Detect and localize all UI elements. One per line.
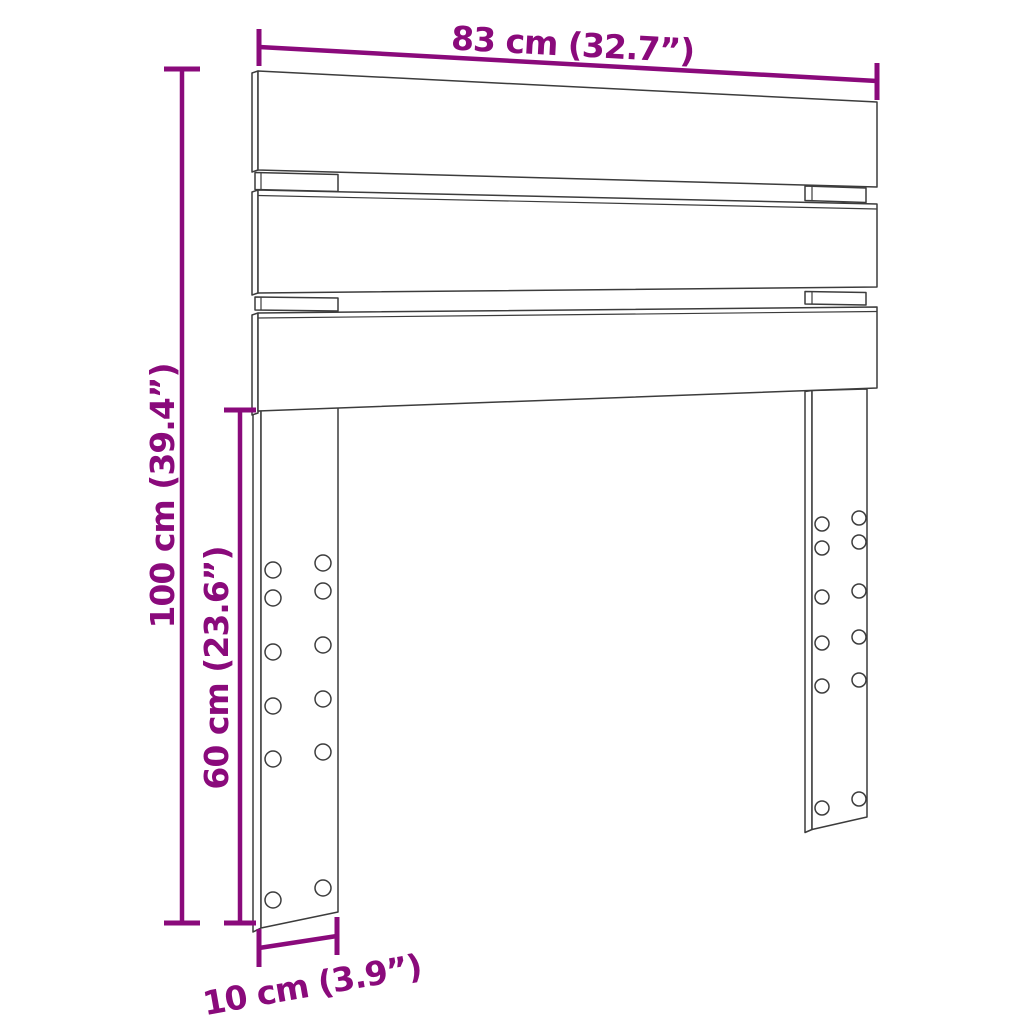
diagram-canvas: 83 cm (32.7”) 100 cm (39.4”) 60 cm (23.6… — [0, 0, 1024, 1024]
top-slat — [252, 71, 877, 187]
middle-slat — [252, 190, 877, 295]
left-post-tab-upper — [255, 173, 338, 192]
headboard-diagram: 83 cm (32.7”) 100 cm (39.4”) 60 cm (23.6… — [0, 0, 1024, 1024]
height-label: 100 cm (39.4”) — [143, 363, 182, 628]
top-slat-front-face — [258, 71, 877, 187]
left-leg-front-face — [261, 407, 338, 929]
right-leg-side-face — [805, 391, 812, 833]
headboard-drawing — [252, 71, 877, 932]
leg-height-label: 60 cm (23.6”) — [197, 546, 236, 789]
right-post-tab-lower — [805, 292, 866, 306]
top-slat-side-face — [252, 71, 258, 172]
leg-width-label: 10 cm (3.9”) — [200, 946, 425, 1023]
bottom-slat-front-face — [258, 307, 877, 411]
bottom-slat — [252, 307, 877, 415]
dimension-leg-height: 60 cm (23.6”) — [197, 410, 256, 923]
left-post-tab-lower — [255, 297, 338, 311]
dimension-height: 100 cm (39.4”) — [143, 69, 200, 923]
bottom-slat-side-face — [252, 313, 258, 415]
width-label: 83 cm (32.7”) — [450, 18, 695, 70]
left-leg — [253, 407, 338, 933]
middle-slat-side-face — [252, 190, 258, 295]
right-post-tab-upper — [805, 186, 866, 203]
left-leg-side-face — [253, 411, 261, 933]
right-leg-front-face — [812, 389, 867, 830]
dimension-leg-width: 10 cm (3.9”) — [200, 917, 425, 1023]
middle-slat-front-face — [258, 190, 877, 293]
right-leg — [805, 389, 867, 833]
